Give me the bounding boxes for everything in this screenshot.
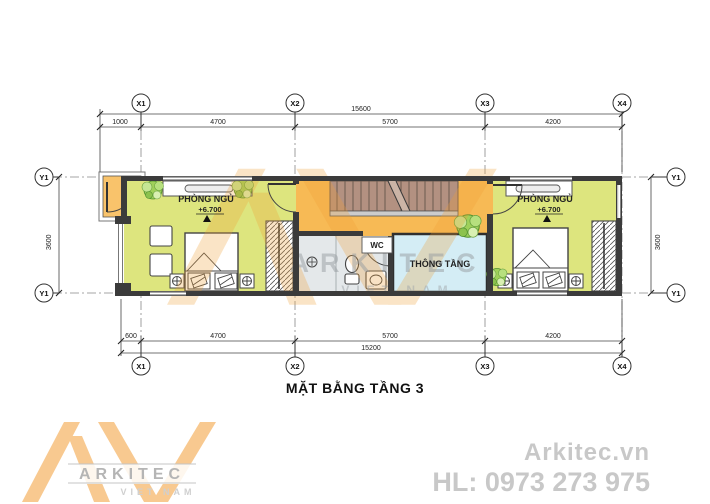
svg-text:X4: X4 (617, 362, 627, 371)
svg-text:Y1: Y1 (39, 173, 48, 182)
svg-text:15600: 15600 (351, 106, 371, 113)
svg-text:4200: 4200 (545, 119, 561, 126)
floor-plan-drawing: ARKITEC VIET NAM (0, 0, 710, 418)
dimension-left (56, 174, 62, 296)
logo-country: VIET NAM (120, 487, 195, 497)
staircase (330, 181, 458, 216)
svg-text:X2: X2 (290, 99, 299, 108)
svg-text:X4: X4 (617, 99, 627, 108)
dimension-left-label: 3600 (46, 234, 53, 250)
company-logo: ARKITEC VIET NAM (12, 418, 272, 504)
svg-text:Y1: Y1 (671, 289, 680, 298)
bedroom-right-level: +6.700 (537, 205, 560, 214)
svg-text:15200: 15200 (361, 345, 381, 352)
svg-text:Y1: Y1 (671, 173, 680, 182)
svg-text:600: 600 (125, 333, 137, 340)
hotline-text: HL: 0973 273 975 (432, 467, 650, 498)
dimension-labels-bottom: 600 4700 5700 4200 15200 (125, 333, 561, 352)
bedroom-left-level: +6.700 (198, 205, 221, 214)
svg-text:1000: 1000 (112, 119, 128, 126)
svg-text:X3: X3 (480, 99, 489, 108)
svg-text:X2: X2 (290, 362, 299, 371)
dimension-right-label: 3600 (655, 234, 662, 250)
svg-text:5700: 5700 (382, 333, 398, 340)
dimension-labels-top: 15600 1000 4700 5700 4200 (112, 106, 561, 126)
bedroom-left-label: PHÒNG NGỦ (178, 193, 234, 204)
contact-block: Arkitec.vn HL: 0973 273 975 (432, 439, 650, 498)
bedroom-right-label: PHÒNG NGỦ (517, 193, 573, 204)
svg-text:4700: 4700 (210, 333, 226, 340)
svg-text:5700: 5700 (382, 119, 398, 126)
void-label: THÔNG TẦNG (410, 258, 471, 269)
wc-label: WC (370, 241, 384, 250)
svg-text:Y1: Y1 (39, 289, 48, 298)
dimension-right (648, 174, 654, 296)
website-text: Arkitec.vn (432, 439, 650, 467)
floor-plan-sheet: ARKITEC VIET NAM (0, 0, 710, 504)
svg-text:X1: X1 (136, 99, 145, 108)
svg-text:X3: X3 (480, 362, 489, 371)
svg-text:X1: X1 (136, 362, 145, 371)
logo-brand: ARKITEC (79, 466, 185, 483)
svg-text:4700: 4700 (210, 119, 226, 126)
drawing-title: MẶT BẰNG TẦNG 3 (0, 380, 710, 396)
svg-text:4200: 4200 (545, 333, 561, 340)
